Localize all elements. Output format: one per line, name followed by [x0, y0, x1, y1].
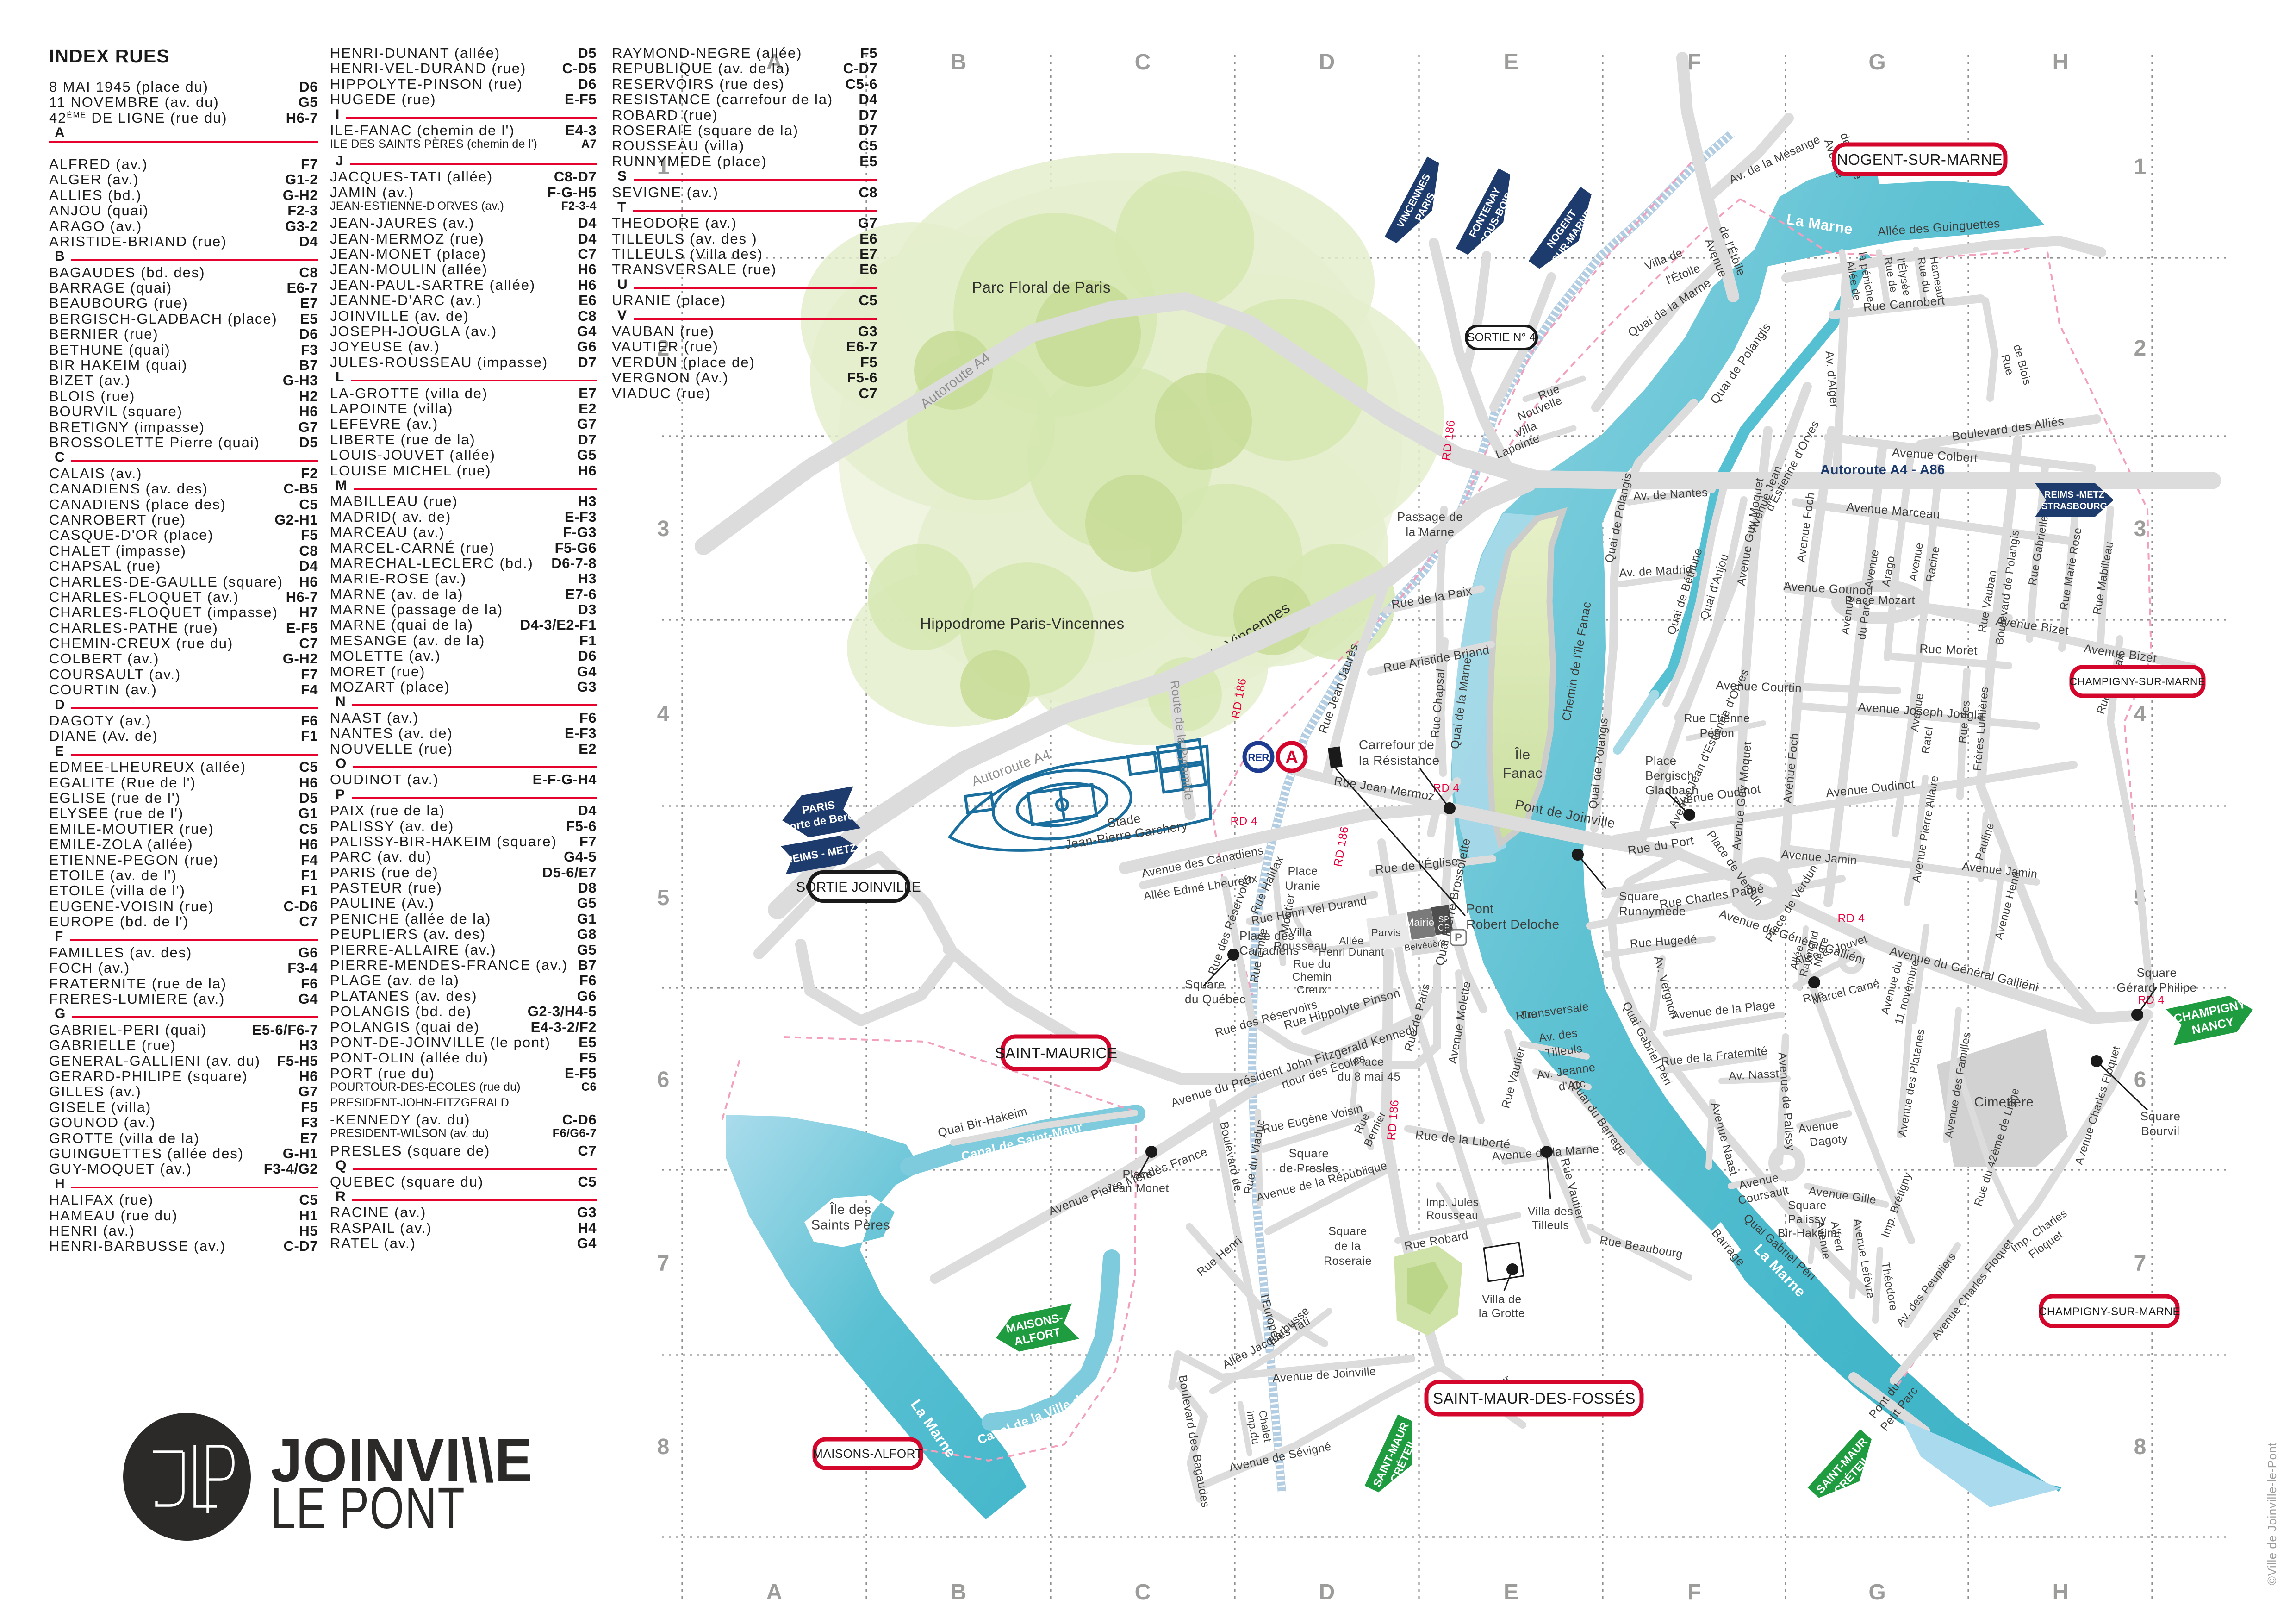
svg-text:G: G — [1868, 50, 1885, 75]
svg-text:Rue Henri Vel Durand: Rue Henri Vel Durand — [1251, 894, 1368, 927]
svg-text:Robert Deloche: Robert Deloche — [1466, 917, 1560, 931]
svg-text:du Québec: du Québec — [1185, 992, 1246, 1006]
svg-text:Square: Square — [1788, 1199, 1827, 1212]
svg-text:Henri Dunant: Henri Dunant — [1319, 946, 1384, 958]
svg-text:Boulevard des Alliés: Boulevard des Alliés — [1951, 414, 2065, 443]
svg-text:F: F — [1687, 50, 1701, 75]
svg-text:la Résistance: la Résistance — [1359, 753, 1440, 768]
svg-text:Pégon: Pégon — [1700, 727, 1735, 740]
svg-text:Rue Moret: Rue Moret — [1919, 642, 1978, 657]
svg-text:SAINT-MAUR-DES-FOSSÉS: SAINT-MAUR-DES-FOSSÉS — [1433, 1390, 1636, 1407]
svg-text:6: 6 — [657, 1068, 670, 1092]
svg-text:RD 4: RD 4 — [1838, 912, 1865, 925]
svg-text:SORTIE JOINVILLE: SORTIE JOINVILLE — [796, 880, 921, 895]
svg-text:8: 8 — [2134, 1435, 2147, 1459]
svg-text:Avenue Molette: Avenue Molette — [1446, 980, 1474, 1064]
svg-text:Runnymede: Runnymede — [1619, 904, 1686, 918]
svg-text:Allée: Allée — [1339, 935, 1364, 947]
svg-text:B: B — [951, 1580, 967, 1605]
svg-text:Bourvil: Bourvil — [2141, 1124, 2180, 1138]
svg-text:REIMS -METZ: REIMS -METZ — [2044, 490, 2104, 500]
svg-text:Place: Place — [1645, 754, 1677, 768]
svg-text:Villa de: Villa de — [1482, 1293, 1522, 1306]
svg-text:Villa des: Villa des — [1528, 1205, 1574, 1218]
svg-text:Avenue Pierre Mendès France: Avenue Pierre Mendès France — [1046, 1144, 1209, 1218]
svg-text:de Presles: de Presles — [1279, 1161, 1338, 1175]
svg-text:Avenue: Avenue — [1907, 542, 1926, 582]
svg-text:©Ville de Joinville-le-Pont: ©Ville de Joinville-le-Pont — [2265, 1443, 2279, 1585]
svg-text:Place: Place — [1122, 1168, 1152, 1181]
svg-text:SORTIE N° 4: SORTIE N° 4 — [1467, 331, 1536, 344]
svg-text:Tilleuls: Tilleuls — [1532, 1219, 1569, 1232]
svg-text:Square: Square — [1619, 889, 1659, 903]
svg-text:1: 1 — [2134, 155, 2147, 179]
svg-text:Marcel Carné: Marcel Carné — [1811, 977, 1881, 1007]
svg-text:A: A — [766, 1580, 783, 1605]
svg-text:CHAMPIGNY-SUR-MARNE: CHAMPIGNY-SUR-MARNE — [2069, 675, 2205, 687]
svg-text:RD 186: RD 186 — [1332, 825, 1351, 868]
svg-text:Théodore: Théodore — [1879, 1261, 1900, 1312]
svg-text:Bergisch: Bergisch — [1645, 768, 1694, 782]
svg-text:Mairie: Mairie — [1406, 917, 1435, 928]
svg-text:CHAMPIGNY-SUR-MARNE: CHAMPIGNY-SUR-MARNE — [2039, 1305, 2180, 1318]
svg-text:Parvis: Parvis — [1371, 927, 1401, 938]
svg-text:7: 7 — [657, 1251, 670, 1276]
svg-text:de la: de la — [1335, 1240, 1361, 1253]
svg-text:4: 4 — [657, 702, 670, 726]
svg-text:Rue du: Rue du — [1294, 958, 1331, 970]
svg-text:E: E — [1504, 50, 1518, 75]
svg-text:Square: Square — [2137, 966, 2177, 980]
svg-text:Pont: Pont — [1466, 901, 1494, 916]
svg-text:Île: Île — [1514, 747, 1530, 762]
svg-text:SAINT-MAURICE: SAINT-MAURICE — [995, 1044, 1117, 1062]
svg-text:P: P — [1455, 931, 1462, 944]
svg-text:3: 3 — [657, 517, 670, 541]
svg-text:Square: Square — [1328, 1225, 1367, 1238]
svg-text:Fanac: Fanac — [1503, 766, 1543, 781]
svg-text:Place: Place — [1288, 865, 1318, 878]
svg-text:Chemin: Chemin — [1292, 971, 1332, 983]
svg-text:F: F — [1687, 1580, 1701, 1605]
svg-text:NOGENT-SUR-MARNE: NOGENT-SUR-MARNE — [1837, 151, 2003, 168]
svg-text:7: 7 — [2134, 1251, 2147, 1276]
svg-text:5: 5 — [657, 886, 670, 910]
svg-text:2: 2 — [2134, 336, 2147, 361]
svg-text:RER: RER — [1248, 751, 1269, 763]
svg-text:Rue de la Paix: Rue de la Paix — [1390, 584, 1473, 612]
svg-text:Rue Hugedé: Rue Hugedé — [1630, 933, 1698, 950]
svg-text:Uranie: Uranie — [1285, 880, 1321, 893]
svg-text:Avenue Charles Floquet: Avenue Charles Floquet — [1929, 1237, 2016, 1342]
svg-text:Avenue Foch: Avenue Foch — [1781, 732, 1801, 804]
svg-text:Rue Etienne: Rue Etienne — [1684, 712, 1750, 725]
svg-text:MAISONS-ALFORT: MAISONS-ALFORT — [813, 1447, 923, 1461]
svg-text:du 8 mai 45: du 8 mai 45 — [1338, 1070, 1400, 1083]
svg-text:Rue Mabilleau: Rue Mabilleau — [2091, 541, 2116, 616]
svg-text:Carrefour de: Carrefour de — [1359, 737, 1434, 752]
svg-text:Dagoty: Dagoty — [1809, 1132, 1848, 1149]
svg-text:la Marne: la Marne — [1406, 525, 1454, 539]
svg-text:Imp. Jules: Imp. Jules — [1426, 1196, 1479, 1209]
svg-text:Passage de: Passage de — [1397, 510, 1463, 524]
svg-text:RD 4: RD 4 — [1231, 815, 1258, 828]
svg-text:Villa: Villa — [1289, 926, 1312, 939]
svg-text:Jean Monet: Jean Monet — [1106, 1182, 1169, 1195]
svg-text:H: H — [2053, 1580, 2069, 1605]
svg-text:Gladbach: Gladbach — [1645, 783, 1699, 797]
svg-text:Parc Floral de Paris: Parc Floral de Paris — [972, 279, 1111, 296]
svg-text:Creux: Creux — [1297, 984, 1328, 996]
svg-text:C: C — [1135, 1580, 1151, 1605]
svg-text:Rue Jean Mermoz: Rue Jean Mermoz — [1333, 774, 1436, 803]
svg-text:C: C — [1135, 50, 1151, 75]
svg-text:Square: Square — [1289, 1146, 1329, 1160]
svg-text:Pauline: Pauline — [1973, 821, 1997, 862]
svg-text:Ratel: Ratel — [1919, 726, 1935, 755]
svg-text:G: G — [1868, 1580, 1885, 1605]
svg-text:Square: Square — [2140, 1109, 2181, 1123]
svg-text:Rue de la Liberté: Rue de la Liberté — [1415, 1127, 1512, 1151]
svg-text:Av. Nasst: Av. Nasst — [1728, 1067, 1779, 1083]
svg-text:8: 8 — [657, 1435, 670, 1459]
svg-text:H: H — [2053, 50, 2069, 75]
svg-text:STRASBOURG: STRASBOURG — [2041, 501, 2107, 512]
svg-text:Canal de la Ville de Paris: Canal de la Ville de Paris — [976, 1377, 1123, 1447]
svg-text:3: 3 — [2134, 517, 2147, 541]
svg-text:Autoroute A4 - A86: Autoroute A4 - A86 — [1820, 462, 1945, 477]
svg-text:Rue Gabrielle: Rue Gabrielle — [2026, 514, 2051, 587]
svg-text:la Grotte: la Grotte — [1479, 1307, 1525, 1320]
svg-text:Avenue: Avenue — [1798, 1118, 1839, 1136]
svg-text:A: A — [1285, 748, 1298, 767]
svg-text:D: D — [1319, 1580, 1335, 1605]
svg-text:Roseraie: Roseraie — [1324, 1255, 1372, 1268]
svg-text:Avenue des Platanes: Avenue des Platanes — [1896, 1028, 1928, 1137]
svg-text:D: D — [1319, 50, 1335, 75]
svg-text:Rue du Viaduc: Rue du Viaduc — [1242, 1118, 1267, 1195]
svg-text:B: B — [951, 50, 967, 75]
svg-text:E: E — [1504, 1580, 1518, 1605]
svg-text:4: 4 — [2134, 702, 2147, 726]
svg-text:Rousseau: Rousseau — [1426, 1209, 1478, 1222]
svg-text:Gérard Philipe: Gérard Philipe — [2116, 981, 2196, 994]
svg-text:Hippodrome Paris-Vincennes: Hippodrome Paris-Vincennes — [920, 615, 1125, 632]
svg-text:6: 6 — [2134, 1068, 2147, 1092]
svg-text:Place: Place — [1354, 1056, 1384, 1068]
svg-text:Racine: Racine — [1924, 545, 1942, 583]
